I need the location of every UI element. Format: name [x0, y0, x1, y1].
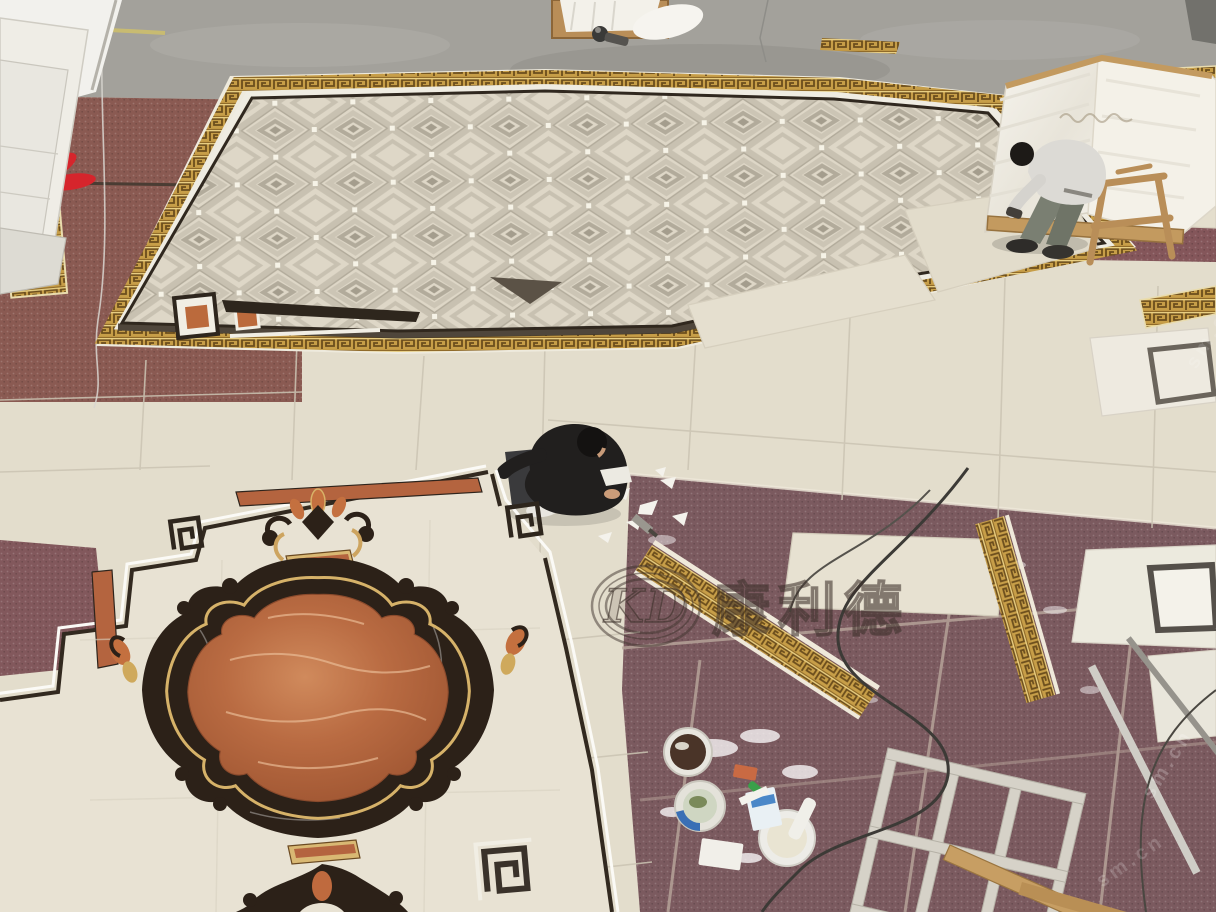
bucket-blue	[675, 781, 725, 831]
rust-marble-center	[188, 594, 448, 801]
watermark-logo-text: KD	[602, 579, 688, 633]
photo-canvas: KD 康利德 sm.cn sm.cn sm.cn	[0, 0, 1216, 912]
scene-graphic: KD 康利德 sm.cn sm.cn sm.cn	[0, 0, 1216, 912]
key-pattern-tile-2	[1072, 545, 1216, 648]
watermark-brand-text: 康利德	[712, 578, 910, 643]
bucket-dark	[664, 728, 712, 776]
